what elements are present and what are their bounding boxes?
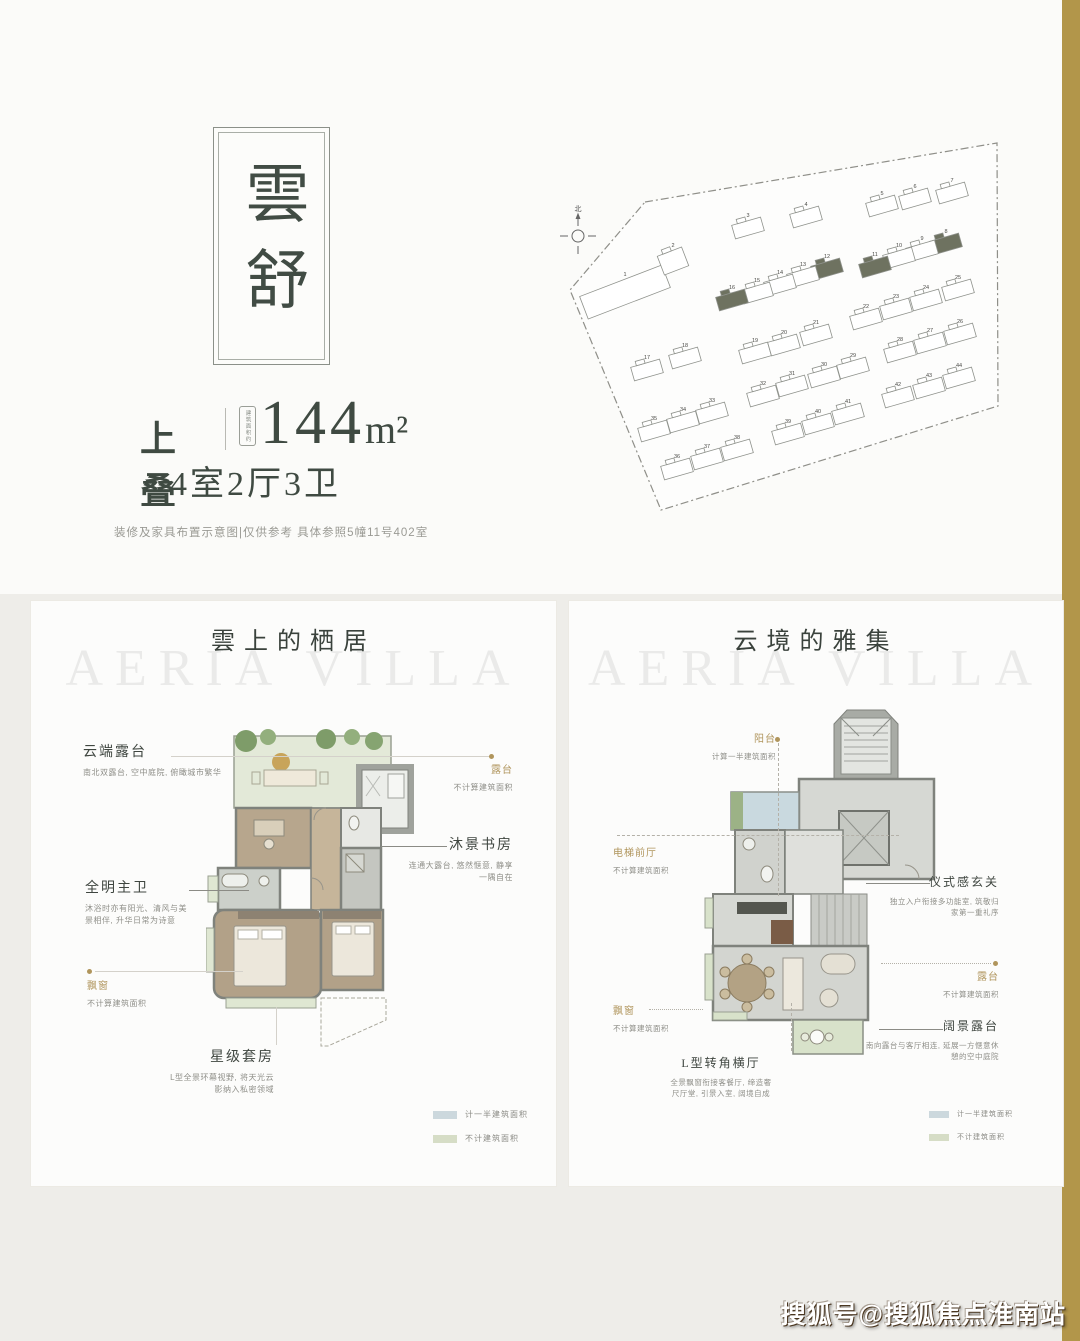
kitchen [713, 894, 793, 946]
annotation-desc: 一隅自在 [363, 872, 513, 884]
annotation-desc: 不计算建筑面积 [869, 989, 999, 1000]
siteplan-map: 北 12345678910111213141516171819202122232… [545, 130, 1065, 530]
siteplan-building-number: 23 [893, 294, 899, 300]
siteplan-building-number: 43 [926, 373, 932, 379]
bay-window-strip [206, 928, 214, 972]
right-legend: 计一半建筑面积 不计建筑面积 [929, 1109, 1013, 1155]
lounge-chair [821, 954, 855, 974]
legend-item: 不计建筑面积 [929, 1132, 1013, 1142]
unit-name-box-inner: 雲舒 [218, 132, 325, 360]
annotation-desc: 不计算建筑面积 [87, 998, 207, 1010]
siteplan-building-number: 25 [955, 275, 961, 281]
desk-chair [264, 839, 274, 849]
annotation-bay-window: 飘窗 不计算建筑面积 [87, 977, 207, 1010]
siteplan-building-number: 35 [651, 416, 657, 422]
siteplan-building-number: 21 [813, 320, 819, 326]
leader-line [95, 971, 243, 972]
annotation-title: 沐景书房 [363, 834, 513, 854]
toilet [349, 816, 359, 830]
bay-window-strip [705, 898, 713, 928]
area-unit: m² [365, 407, 408, 452]
annotation-desc: L型全景环幕视野, 将天光云 [104, 1072, 274, 1084]
siteplan-building-number: 11 [872, 252, 878, 258]
siteplan-building-number: 1 [623, 272, 626, 278]
compass-north-label: 北 [575, 205, 582, 213]
leader-line [881, 963, 991, 964]
spec-divider [225, 408, 226, 450]
siteplan-building-number: 6 [913, 184, 916, 190]
annotation-desc: 全景飘窗衔接客餐厅, 缔造奢 [621, 1077, 821, 1088]
pillow [262, 930, 282, 939]
siteplan-building-number: 34 [680, 407, 686, 413]
annotation-title: 全明主卫 [85, 877, 245, 897]
annotation-title: 电梯前厅 [613, 844, 743, 859]
annotation-desc: 憩的空中庭院 [819, 1051, 999, 1062]
sink [743, 838, 755, 850]
sohu-watermark: 搜狐号@搜狐焦点淮南站 [781, 1295, 1066, 1331]
annotation-master-bath: 全明主卫 沐浴时亦有阳光、清风与美 景相伴, 升华日常为诗意 [85, 877, 245, 927]
annotation-title: 飘窗 [613, 1002, 723, 1017]
pillow [355, 926, 370, 934]
siteplan-building-number: 24 [923, 285, 929, 291]
siteplan-building-number: 30 [821, 362, 827, 368]
siteplan-building-number: 14 [777, 270, 783, 276]
annotation-desc: 南向露台与客厅相连, 延展一方惬意休 [819, 1040, 999, 1051]
annotation-title: 仪式感玄关 [829, 873, 999, 890]
siteplan-building-number: 17 [644, 355, 650, 361]
legend-label: 不计建筑面积 [465, 1133, 519, 1144]
annotation-cloud-terrace: 云端露台 南北双露台, 空中庭院, 俯瞰城市繁华 [83, 741, 313, 779]
annotation-desc: 连通大露台, 悠然惬意, 静享 [363, 860, 513, 872]
siteplan-building-number: 27 [927, 328, 933, 334]
wardrobe [323, 911, 381, 919]
siteplan-building-number: 41 [845, 399, 851, 405]
annotation-desc: 影纳入私密领域 [104, 1084, 274, 1096]
pillow [238, 930, 258, 939]
siteplan-building-number: 20 [781, 330, 787, 336]
panel-right-title: 云境的雅集 [569, 621, 1063, 656]
legend-swatch [433, 1135, 457, 1143]
siteplan-building-number: 42 [895, 382, 901, 388]
lower-terrace-dashed [321, 998, 386, 1046]
leader-dot [87, 969, 92, 974]
siteplan-building-number: 18 [682, 343, 688, 349]
siteplan-building-number: 40 [815, 409, 821, 415]
leader-line [791, 1003, 792, 1051]
panel-left-title: 雲上的栖居 [31, 621, 556, 656]
left-legend: 计一半建筑面积 不计建筑面积 [433, 1109, 528, 1157]
bay-window-strip [705, 954, 713, 1000]
leader-line [778, 743, 779, 896]
siteplan-building-number: 44 [956, 363, 962, 369]
annotation-corner-hall: L型转角横厅 全景飘窗衔接客餐厅, 缔造奢 尺厅堂, 引景入室, 阔境自成 [621, 1054, 821, 1099]
side-table [820, 989, 838, 1007]
siteplan-building-number: 29 [850, 353, 856, 359]
siteplan-building-number: 2 [671, 243, 674, 249]
area-value: 144m² [260, 388, 408, 459]
annotation-title: 云端露台 [83, 741, 313, 761]
annotation-desc: 不计算建筑面积 [613, 865, 743, 876]
siteplan-building-number: 7 [950, 178, 953, 184]
desk [254, 820, 284, 836]
siteplan-building-number: 32 [760, 381, 766, 387]
compass-icon: 北 [560, 205, 596, 254]
toilet [761, 866, 773, 882]
legend-item: 计一半建筑面积 [929, 1109, 1013, 1119]
sofa [783, 958, 803, 1010]
dining-table [728, 964, 766, 1002]
siteplan-building-number: 33 [709, 398, 715, 404]
balcony-planter [731, 792, 743, 830]
annotation-study: 沐景书房 连通大露台, 悠然惬意, 静享 一隅自在 [363, 834, 513, 884]
siteplan-building-number: 22 [863, 304, 869, 310]
siteplan-building-number: 28 [897, 337, 903, 343]
siteplan-building-number: 36 [674, 454, 680, 460]
legend-swatch [929, 1111, 949, 1118]
leader-dot [993, 961, 998, 966]
siteplan-building-number: 5 [880, 191, 883, 197]
unit-name: 雲舒 [240, 160, 304, 332]
legend-item: 计一半建筑面积 [433, 1109, 528, 1120]
annotation-view-terrace: 阔景露台 南向露台与客厅相连, 延展一方惬意休 憩的空中庭院 [819, 1017, 999, 1062]
legend-swatch [433, 1111, 457, 1119]
siteplan-building-number: 15 [754, 278, 760, 284]
annotation-balcony: 阳台 计算一半建筑面积 [646, 730, 776, 762]
annotation-desc: 南北双露台, 空中庭院, 俯瞰城市繁华 [83, 767, 313, 779]
annotation-title: 飘窗 [87, 977, 207, 992]
leader-line [617, 835, 899, 836]
sink [259, 876, 269, 886]
annotation-suite: 星级套房 L型全景环幕视野, 将天光云 影纳入私密领域 [104, 1046, 274, 1096]
siteplan-building-number: 4 [804, 202, 807, 208]
annotation-desc: 不计算建筑面积 [613, 1023, 723, 1034]
siteplan-building-number: 31 [789, 371, 795, 377]
stairwell [834, 710, 898, 779]
legend-label: 计一半建筑面积 [465, 1109, 528, 1120]
annotation-title: 露台 [393, 761, 513, 776]
siteplan-building-number: 8 [944, 229, 947, 235]
siteplan-building-number: 38 [734, 435, 740, 441]
siteplan-building-number: 39 [785, 419, 791, 425]
annotation-desc: 独立入户衔接多功能室, 筑敬归 [829, 896, 999, 907]
legend-item: 不计建筑面积 [433, 1133, 528, 1144]
annotation-bay-window: 飘窗 不计算建筑面积 [613, 1002, 723, 1034]
siteplan-building-number: 9 [920, 236, 923, 242]
annotation-desc: 计算一半建筑面积 [646, 751, 776, 762]
siteplan-building-number: 19 [752, 338, 758, 344]
annotation-terrace: 露台 不计算建筑面积 [393, 761, 513, 794]
area-note-badge: 建筑面积约 [239, 406, 256, 446]
annotation-desc: 不计算建筑面积 [393, 782, 513, 794]
area-note-text: 建筑面积约 [244, 410, 252, 443]
annotation-title: 星级套房 [104, 1046, 274, 1066]
annotation-elevator-hall: 电梯前厅 不计算建筑面积 [613, 844, 743, 876]
study-room [236, 808, 311, 868]
disclaimer-text: 装修及家具布置示意图|仅供参考 具体参照5幢11号402室 [114, 524, 428, 540]
legend-label: 计一半建筑面积 [957, 1109, 1013, 1119]
siteplan-building-number: 37 [704, 444, 710, 450]
annotation-title: L型转角横厅 [621, 1054, 821, 1071]
annotation-terrace: 露台 不计算建筑面积 [869, 968, 999, 1000]
annotation-title: 阳台 [646, 730, 776, 745]
annotation-foyer: 仪式感玄关 独立入户衔接多功能室, 筑敬归 家第一重礼序 [829, 873, 999, 918]
flyer-page: 雲舒 上叠 建筑面积约 144m² 4室2厅3卫 装修及家具布置示意图|仅供参考… [0, 0, 1080, 1341]
annotation-title: 露台 [869, 968, 999, 983]
area-number: 144 [260, 389, 365, 457]
annotation-desc: 沐浴时亦有阳光、清风与美 [85, 903, 245, 915]
siteplan-building-number: 12 [824, 254, 830, 260]
legend-swatch [929, 1134, 949, 1141]
site-boundary [570, 143, 998, 510]
annotation-desc: 尺厅堂, 引景入室, 阔境自成 [621, 1088, 821, 1099]
pillow [336, 926, 351, 934]
annotation-title: 阔景露台 [819, 1017, 999, 1034]
hallway [311, 808, 341, 910]
annotation-desc: 家第一重礼序 [829, 907, 999, 918]
siteplan-building-number: 10 [896, 243, 902, 249]
leader-dot [489, 754, 494, 759]
rooms-label: 4室2厅3卫 [170, 456, 341, 505]
siteplan-building-number: 26 [957, 319, 963, 325]
wardrobe [238, 911, 319, 919]
siteplan-building-number: 16 [729, 285, 735, 291]
panel-left: AERIA VILLA 雲上的栖居 [30, 600, 557, 1187]
siteplan-building-number: 3 [746, 213, 749, 219]
panel-right: AERIA VILLA 云境的雅集 [568, 600, 1064, 1187]
legend-label: 不计建筑面积 [957, 1132, 1005, 1142]
unit-name-box: 雲舒 [213, 127, 330, 365]
siteplan-building-number: 13 [800, 262, 806, 268]
leader-line [276, 1007, 277, 1045]
annotation-desc: 景相伴, 升华日常为诗意 [85, 915, 245, 927]
balcony-strip [226, 998, 316, 1008]
